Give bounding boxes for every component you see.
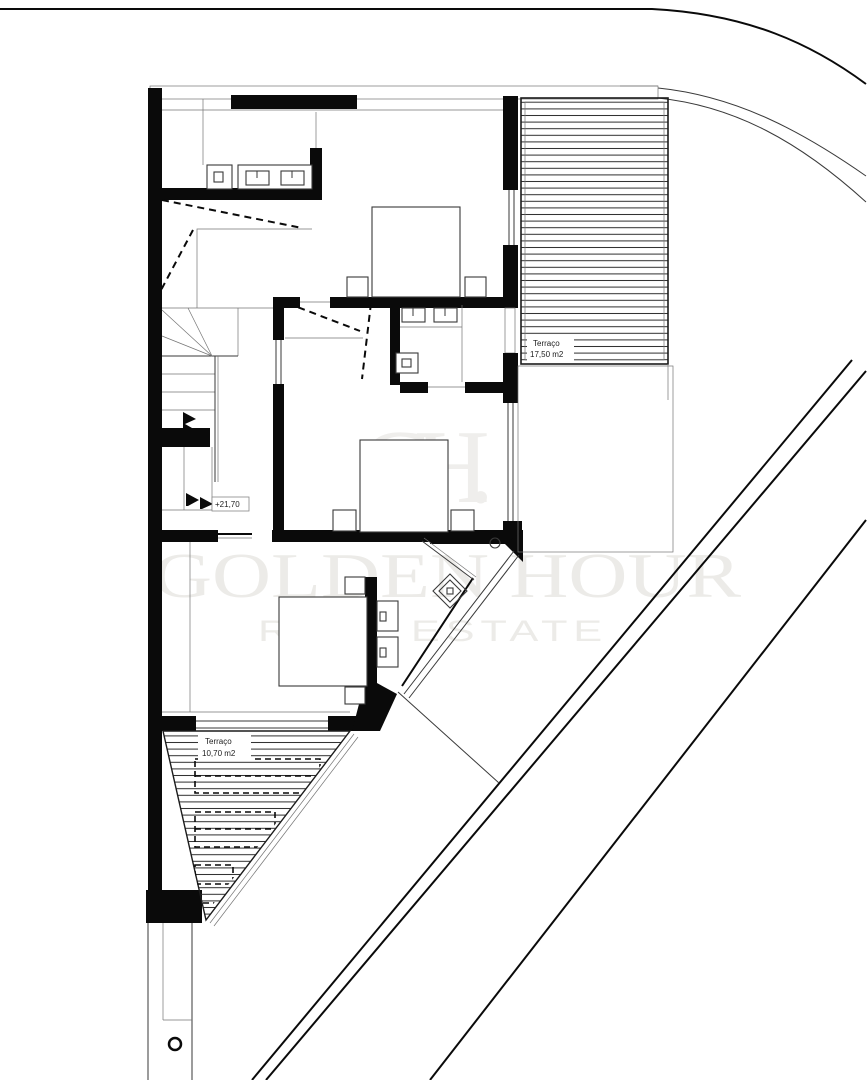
- terrace-bottom-name: Terraço: [205, 737, 232, 746]
- nightstand: [451, 510, 474, 531]
- wall-bath2-bottom-b: [465, 382, 505, 393]
- window-b2-left: [276, 340, 281, 384]
- toilet: [396, 353, 418, 373]
- terrace-right: Terraço 17,50 m2: [518, 98, 673, 552]
- winder-treads: [162, 308, 212, 356]
- terrace-right-name: Terraço: [533, 339, 560, 348]
- window-b2-right: [508, 403, 513, 521]
- pole: [169, 1038, 181, 1050]
- closet-door-dashes: [285, 303, 371, 379]
- floor-plan-page: GH. GOLDEN HOUR REAL ESTATE: [0, 0, 867, 1080]
- curved-parapet-inner: [658, 98, 866, 202]
- wall-bedroom1-bottom-b: [330, 297, 518, 308]
- level-label: +21,70: [215, 500, 240, 509]
- stair-landing-wall: [157, 428, 210, 447]
- nightstand: [345, 687, 365, 704]
- wall-bath2-bottom-a: [400, 382, 428, 393]
- terrace-bottom-area: 10,70 m2: [202, 749, 236, 758]
- nightstand: [347, 277, 368, 297]
- toilet: [207, 165, 232, 189]
- wall-right-mid: [503, 245, 518, 297]
- site-top-boundary-line: [0, 9, 866, 84]
- wall-b2-left-b: [273, 384, 284, 532]
- lower-strip: [148, 923, 192, 1080]
- bathroom2: [396, 305, 462, 382]
- stair-direction-arrows: [183, 412, 213, 509]
- wall-master-bottom-a: [148, 716, 196, 731]
- wall-b2-right-a: [503, 353, 518, 403]
- wall-right-top: [503, 96, 518, 190]
- wall-top: [231, 95, 357, 109]
- terrace-right-area: 17,50 m2: [530, 350, 564, 359]
- wall-b2-left-a: [273, 297, 284, 340]
- wall-hall-bottom-a: [158, 530, 218, 542]
- plot-connector-line: [398, 692, 499, 783]
- bed: [279, 597, 367, 686]
- wall-left: [148, 88, 162, 922]
- wall-bath1-bottom: [148, 188, 322, 200]
- nightstand: [345, 577, 365, 594]
- nightstand: [465, 277, 486, 297]
- bathroom1: [160, 99, 316, 308]
- bed: [360, 440, 448, 532]
- wall-corner-bottom-left: [146, 890, 202, 923]
- curved-parapet-outer: [658, 88, 866, 176]
- closet-door-dashes: [160, 200, 312, 308]
- floor-plan-drawing: GH. GOLDEN HOUR REAL ESTATE: [0, 0, 867, 1080]
- window-master-bottom: [196, 721, 330, 728]
- watermark-title: GOLDEN HOUR: [153, 540, 741, 611]
- bed: [372, 207, 460, 297]
- nightstand: [333, 510, 356, 531]
- staircase: +21,70: [157, 308, 249, 511]
- site-boundary: [0, 9, 866, 202]
- window-right-top: [509, 190, 514, 245]
- bedroom1: [347, 207, 486, 297]
